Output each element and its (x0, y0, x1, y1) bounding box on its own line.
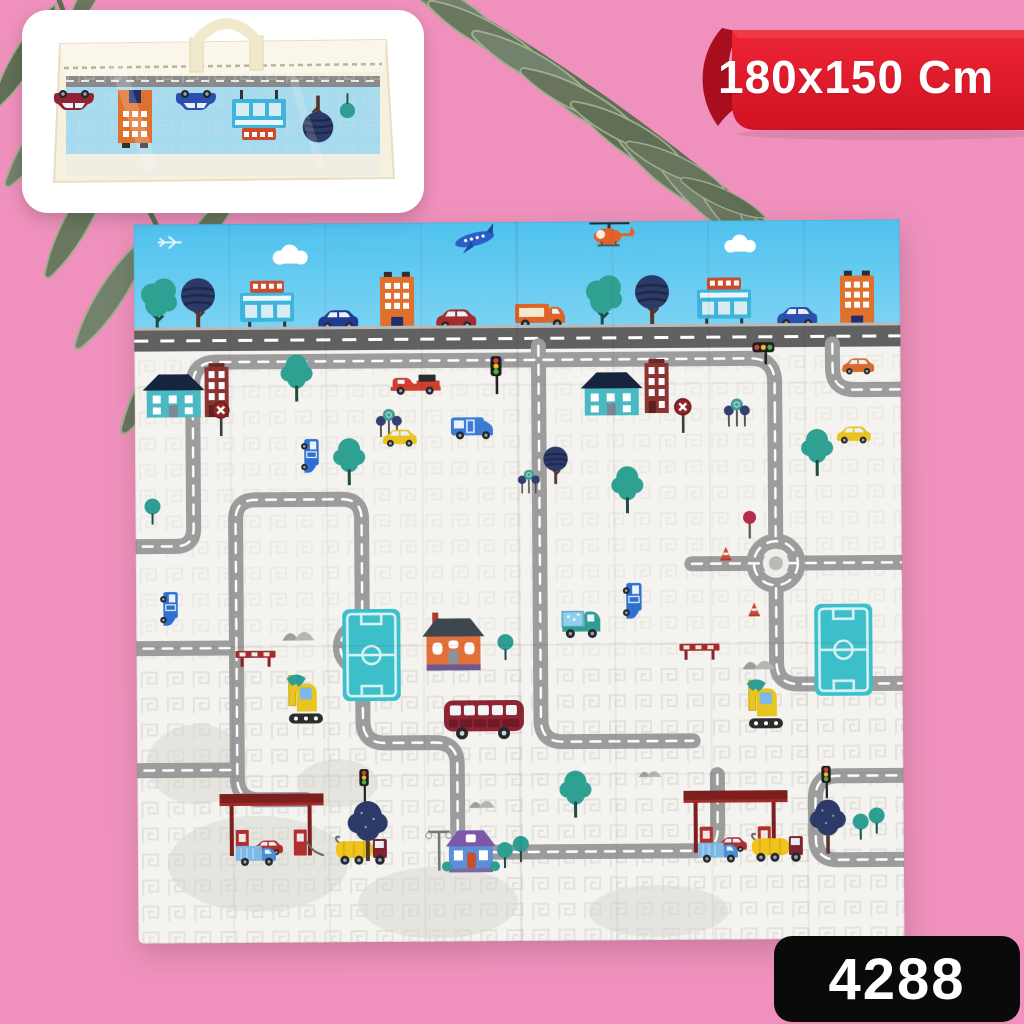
carry-bag (54, 23, 394, 182)
packaged-mat-photo (22, 10, 424, 213)
carry-bag-illustration (22, 10, 424, 213)
product-photo: 180x150 Cm 4288 (0, 0, 1024, 1024)
play-mat (133, 219, 904, 943)
product-code: 4288 (828, 946, 965, 1013)
product-code-badge: 4288 (774, 936, 1020, 1022)
size-label: 180x150 Cm (688, 50, 1024, 104)
